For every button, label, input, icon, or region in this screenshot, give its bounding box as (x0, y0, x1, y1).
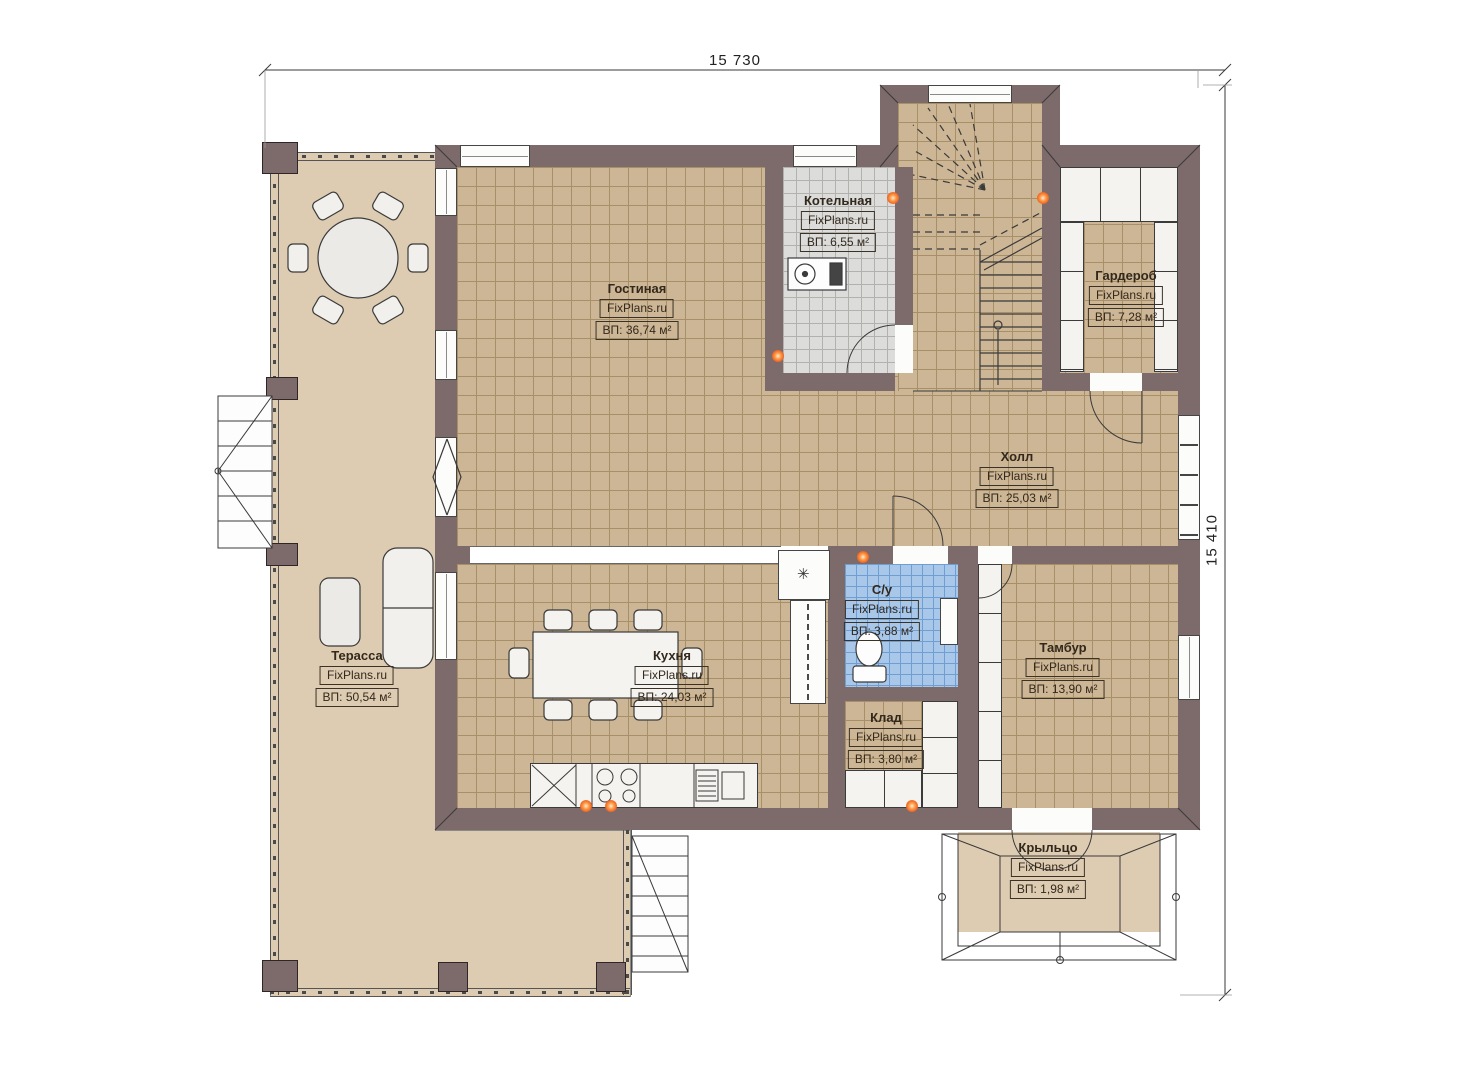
room-name: Котельная (800, 193, 876, 208)
stairwell-floor (898, 103, 1042, 391)
wall (958, 546, 978, 808)
light-dot (605, 800, 617, 812)
wardrobe-cabinet (1060, 167, 1178, 222)
wall (765, 167, 783, 373)
terrace-sliding-door (435, 437, 457, 517)
room-name: Холл (976, 449, 1059, 464)
room-area: ВП: 6,55 м² (800, 233, 876, 252)
room-area: ВП: 3,80 м² (848, 750, 924, 769)
room-label-garderob: Гардероб FixPlans.ru ВП: 7,28 м² (1088, 268, 1164, 327)
fixplans-watermark: FixPlans.ru (845, 600, 919, 619)
wall (457, 808, 1012, 830)
window (928, 85, 1012, 103)
terrace-post (596, 962, 626, 992)
window (793, 145, 857, 167)
room-name: Клад (848, 710, 924, 725)
window (435, 330, 457, 380)
light-dot (887, 192, 899, 204)
wall (828, 564, 845, 808)
fixplans-watermark: FixPlans.ru (635, 666, 709, 685)
room-name: Тамбур (1022, 640, 1105, 655)
washing-machine (940, 598, 958, 645)
room-area: ВП: 50,54 м² (316, 688, 399, 707)
terrace-post (262, 960, 298, 992)
terrace-door (435, 572, 457, 660)
door-opening-garderob (1090, 373, 1142, 391)
wall (1142, 373, 1178, 391)
exterior-stairs (632, 836, 688, 972)
room-label-terassa: Терасса FixPlans.ru ВП: 50,54 м² (316, 648, 399, 707)
terrace-post (262, 142, 298, 174)
room-area: ВП: 7,28 м² (1088, 308, 1164, 327)
terrace-side-steps (215, 396, 272, 548)
room-area: ВП: 1,98 м² (1010, 880, 1086, 899)
room-label-krylco: Крыльцо FixPlans.ru ВП: 1,98 м² (1010, 840, 1086, 899)
room-label-klad: Клад FixPlans.ru ВП: 3,80 м² (848, 710, 924, 769)
room-name: Гостиная (596, 281, 679, 296)
vent-icon: ✳ (797, 567, 810, 582)
wall (1042, 373, 1090, 391)
door-opening-tambur (978, 546, 1012, 564)
room-name: С/у (844, 582, 920, 597)
light-dot (772, 350, 784, 362)
dimension-width: 15 730 (709, 52, 761, 69)
wall (845, 687, 958, 701)
wide-opening (470, 546, 781, 564)
light-dot (857, 551, 869, 563)
room-label-su: С/у FixPlans.ru ВП: 3,88 м² (844, 582, 920, 641)
window (435, 168, 457, 216)
terrace-post (266, 377, 298, 400)
room-name: Кухня (631, 648, 714, 663)
fixplans-watermark: FixPlans.ru (849, 728, 923, 747)
window (1178, 415, 1200, 540)
room-label-kuhnya: Кухня FixPlans.ru ВП: 24,03 м² (631, 648, 714, 707)
light-dot (1037, 192, 1049, 204)
wall (1060, 145, 1178, 167)
dimension-height: 15 410 (1204, 514, 1221, 566)
fixplans-watermark: FixPlans.ru (1089, 286, 1163, 305)
door-opening-su (893, 546, 948, 564)
wall (880, 85, 928, 103)
light-dot (580, 800, 592, 812)
room-name: Крыльцо (1010, 840, 1086, 855)
room-area: ВП: 24,03 м² (631, 688, 714, 707)
room-label-tambur: Тамбур FixPlans.ru ВП: 13,90 м² (1022, 640, 1105, 699)
light-dot (906, 800, 918, 812)
tambur-cabinet (978, 564, 1002, 808)
terrace-post (266, 543, 298, 566)
room-label-gostinaya: Гостиная FixPlans.ru ВП: 36,74 м² (596, 281, 679, 340)
wall (895, 167, 913, 325)
room-area: ВП: 36,74 м² (596, 321, 679, 340)
terrace-post (438, 962, 468, 992)
fixplans-watermark: FixPlans.ru (320, 666, 394, 685)
terrace-floor (270, 152, 437, 997)
wall (1042, 103, 1060, 167)
chimney-axis (807, 604, 809, 700)
wall (1092, 808, 1178, 830)
fixplans-watermark: FixPlans.ru (801, 211, 875, 230)
kitchen-counter (530, 763, 758, 808)
fixplans-watermark: FixPlans.ru (600, 299, 674, 318)
window (460, 145, 530, 167)
room-area: ВП: 13,90 м² (1022, 680, 1105, 699)
wardrobe-cabinet (1060, 222, 1084, 372)
wall (880, 103, 898, 167)
wall (1012, 546, 1178, 564)
front-door-opening (1012, 808, 1092, 830)
terrace-railing (270, 152, 279, 995)
room-label-holl: Холл FixPlans.ru ВП: 25,03 м² (976, 449, 1059, 508)
fixplans-watermark: FixPlans.ru (980, 467, 1054, 486)
room-label-kotelnaya: Котельная FixPlans.ru ВП: 6,55 м² (800, 193, 876, 252)
fixplans-watermark: FixPlans.ru (1026, 658, 1100, 677)
fixplans-watermark: FixPlans.ru (1011, 858, 1085, 877)
room-area: ВП: 3,88 м² (844, 622, 920, 641)
room-name: Гардероб (1088, 268, 1164, 283)
room-area: ВП: 25,03 м² (976, 489, 1059, 508)
wall (1012, 85, 1060, 103)
window (1178, 635, 1200, 700)
klad-cabinet (922, 701, 958, 808)
room-name: Терасса (316, 648, 399, 663)
floor-plan-canvas: ✳ (0, 0, 1473, 1080)
wall (457, 546, 470, 564)
door-opening-boiler (895, 325, 913, 373)
wall (765, 373, 895, 391)
